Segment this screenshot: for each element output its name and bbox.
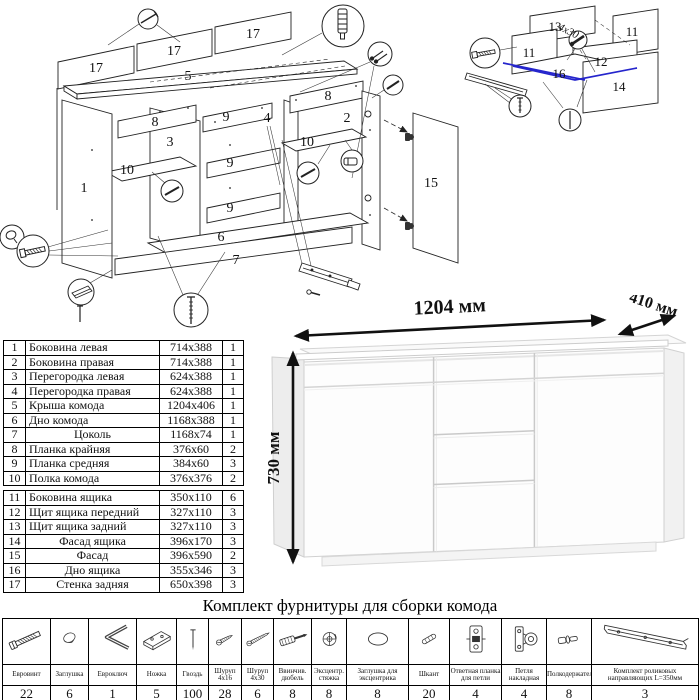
hardware-name: Комплект роликовых направляющих L=350мм: [592, 665, 699, 686]
part-label: 9: [227, 201, 234, 216]
parts-row: 12Щит ящика передний327x1103: [4, 505, 244, 520]
depth-dimension-label: 410 мм: [627, 295, 680, 321]
part-size: 624x388: [160, 370, 223, 385]
part-label: 4: [264, 111, 271, 126]
hardware-qty: 28: [209, 686, 242, 700]
part-number: 13: [4, 520, 26, 535]
part-qty: 3: [223, 520, 244, 535]
hardware-qty: 4: [502, 686, 547, 700]
screw-4x16-icon: [210, 619, 241, 659]
part-label: 15: [424, 176, 438, 191]
part-label: 14: [613, 79, 627, 94]
part-size: 1204x406: [160, 399, 223, 414]
part-label: 7: [233, 253, 240, 268]
parts-row: 2Боковина правая714x3881: [4, 355, 244, 370]
part-size: 350x110: [160, 491, 223, 506]
part-name: Полка комода: [26, 471, 160, 486]
part-size: 327x110: [160, 505, 223, 520]
part-number: 12: [4, 505, 26, 520]
hardware-qty: 6: [242, 686, 274, 700]
part-qty: 2: [223, 549, 244, 564]
hardware-qty: 22: [3, 686, 51, 700]
parts-row: 1Боковина левая714x3881: [4, 341, 244, 356]
part-size: 1168x74: [160, 428, 223, 443]
part-name: Боковина левая: [26, 341, 160, 356]
nail-icon: [178, 619, 208, 659]
part-number: 7: [4, 428, 26, 443]
parts-row: 3Перегородка левая624x3881: [4, 370, 244, 385]
part-name: Крыша комода: [26, 399, 160, 414]
part-label: 3: [167, 135, 174, 150]
parts-row: 10Полка комода376x3762: [4, 471, 244, 486]
part-size: 355x346: [160, 563, 223, 578]
part-number: 17: [4, 578, 26, 593]
part-name: Стенка задняя: [26, 578, 160, 593]
roller-guide-icon: [594, 619, 696, 659]
part-qty: 3: [223, 457, 244, 472]
part-name: Боковина ящика: [26, 491, 160, 506]
part-size: 327x110: [160, 520, 223, 535]
part-label: 16: [553, 66, 567, 81]
part-qty: 3: [223, 563, 244, 578]
part-qty: 3: [223, 534, 244, 549]
part-number: 1: [4, 341, 26, 356]
depth-arrow: [620, 316, 674, 334]
part-label: 12: [595, 54, 608, 69]
part-number: 10: [4, 471, 26, 486]
part-qty: 6: [223, 491, 244, 506]
parts-list-table-2: 11Боковина ящика350x1106 12Щит ящика пер…: [3, 490, 244, 593]
part-name: Боковина правая: [26, 355, 160, 370]
main-exploded-diagram: 17 17 17 5 8 8 9 9 9 1 2 3 4 6 7 10 10 1…: [0, 0, 460, 345]
screw-in-dowel-icon: [275, 619, 311, 659]
part-name: Щит ящика передний: [26, 505, 160, 520]
part-label: 1: [81, 181, 88, 196]
height-dimension-label: 730 мм: [264, 431, 283, 484]
parts-row: 13Щит ящика задний327x1103: [4, 520, 244, 535]
part-number: 2: [4, 355, 26, 370]
parts-row: 7Цоколь1168x741: [4, 428, 244, 443]
part-size: 396x590: [160, 549, 223, 564]
part-number: 14: [4, 534, 26, 549]
width-arrow: [296, 320, 604, 336]
roller-guide-icon: [299, 263, 360, 295]
part-label: 10: [120, 163, 134, 178]
dowel-icon: [412, 619, 446, 659]
hardware-name: Евроключ: [89, 665, 137, 686]
hardware-name: Эксцентр. стяжка: [312, 665, 347, 686]
drawer-exploded-diagram: 13 11 11 12 16 14 4x30: [455, 0, 700, 135]
part-name: Дно комода: [26, 413, 160, 428]
part-label: 2: [344, 111, 351, 126]
parts-row: 9Планка средняя384x603: [4, 457, 244, 472]
part-name: Планка средняя: [26, 457, 160, 472]
part-label: 9: [227, 156, 234, 171]
hardware-name: Шуруп 4x16: [209, 665, 242, 686]
part-qty: 2: [223, 442, 244, 457]
part-name: Щит ящика задний: [26, 520, 160, 535]
part-size: 714x388: [160, 355, 223, 370]
hardware-icons-row: [3, 619, 699, 665]
cam-lock-icon: [313, 619, 346, 659]
part-qty: 1: [223, 399, 244, 414]
hardware-qty: 6: [51, 686, 89, 700]
hardware-name: Шкант: [409, 665, 450, 686]
screw-4x30-icon: [242, 619, 273, 659]
part-label: 10: [300, 135, 314, 150]
part-name: Планка крайняя: [26, 442, 160, 457]
part-number: 15: [4, 549, 26, 564]
part-number: 3: [4, 370, 26, 385]
part-number: 6: [4, 413, 26, 428]
part-label: 8: [325, 89, 332, 104]
part-number: 5: [4, 399, 26, 414]
part-name: Перегородка правая: [26, 384, 160, 399]
hardware-name: Полкодержатель: [547, 665, 592, 686]
part-size: 1168x388: [160, 413, 223, 428]
part-size: 624x388: [160, 384, 223, 399]
parts-row: 17Стенка задняя650x3983: [4, 578, 244, 593]
parts-row: 15Фасад396x5902: [4, 549, 244, 564]
part-qty: 3: [223, 578, 244, 593]
hardware-table: Евровинт Заглушка Евроключ Ножка Гвоздь …: [2, 618, 699, 700]
part-label: 17: [167, 44, 181, 59]
hardware-qty: 4: [450, 686, 502, 700]
part-name: Фасад ящика: [26, 534, 160, 549]
part-size: 396x170: [160, 534, 223, 549]
width-dimension-label: 1204 мм: [413, 295, 486, 320]
part-qty: 1: [223, 370, 244, 385]
part-number: 9: [4, 457, 26, 472]
hardware-name: Петля накладная: [502, 665, 547, 686]
part-label: 11: [523, 45, 536, 60]
part-size: 376x376: [160, 471, 223, 486]
hardware-names-row: Евровинт Заглушка Евроключ Ножка Гвоздь …: [3, 665, 699, 686]
hardware-name: Заглушка для эксцентрика: [347, 665, 409, 686]
part-qty: 1: [223, 428, 244, 443]
part-size: 376x60: [160, 442, 223, 457]
nail-icon: [77, 306, 83, 322]
assembly-sheet: 17 17 17 5 8 8 9 9 9 1 2 3 4 6 7 10 10 1…: [0, 0, 700, 700]
parts-row: 8Планка крайняя376x602: [4, 442, 244, 457]
part-label: 17: [89, 61, 103, 76]
parts-row: 4Перегородка правая624x3881: [4, 384, 244, 399]
part-label: 17: [246, 27, 260, 42]
hardware-name: Евровинт: [3, 665, 51, 686]
part-number: 4: [4, 384, 26, 399]
hardware-qty: 1: [89, 686, 137, 700]
hardware-qty: 8: [347, 686, 409, 700]
parts-row: 6Дно комода1168x3881: [4, 413, 244, 428]
part-qty: 1: [223, 341, 244, 356]
hardware-qty: 8: [547, 686, 592, 700]
hardware-name: Шуруп 4x30: [242, 665, 274, 686]
part-qty: 2: [223, 471, 244, 486]
hardware-qty: 8: [312, 686, 347, 700]
dresser-rendering: [272, 335, 686, 566]
leg-icon: [138, 619, 176, 659]
part-qty: 1: [223, 413, 244, 428]
part-name: Цоколь: [26, 428, 160, 443]
hardware-name: Гвоздь: [177, 665, 209, 686]
part-number: 8: [4, 442, 26, 457]
part-number: 16: [4, 563, 26, 578]
hardware-name: Ножка: [137, 665, 177, 686]
parts-row: 16Дно ящика355x3463: [4, 563, 244, 578]
hinge-icon: [504, 619, 544, 659]
part-number: 11: [4, 491, 26, 506]
part-name: Дно ящика: [26, 563, 160, 578]
hardware-qty: 100: [177, 686, 209, 700]
hardware-name: Ответная планка для петли: [450, 665, 502, 686]
plug-icon: [53, 619, 87, 659]
euro-screw-icon: [5, 619, 49, 659]
hex-key-icon: [91, 619, 135, 659]
hardware-qty: 3: [592, 686, 699, 700]
part-label: 8: [152, 115, 159, 130]
part-size: 384x60: [160, 457, 223, 472]
part-size: 650x398: [160, 578, 223, 593]
hardware-qty-row: 22 6 1 5 100 28 6 8 8 8 20 4 4 8 3: [3, 686, 699, 700]
hardware-qty: 5: [137, 686, 177, 700]
dimension-drawing: 1204 мм 410 мм 730 мм: [260, 295, 700, 600]
part-size: 714x388: [160, 341, 223, 356]
parts-list-table-1: 1Боковина левая714x3881 2Боковина правая…: [3, 340, 244, 486]
part-qty: 3: [223, 505, 244, 520]
part-name: Фасад: [26, 549, 160, 564]
parts-row: 11Боковина ящика350x1106: [4, 491, 244, 506]
hardware-kit-title: Комплект фурнитуры для сборки комода: [0, 596, 700, 616]
hardware-name: Ввинчив. дюбель: [274, 665, 312, 686]
part-label: 9: [223, 110, 230, 125]
shelf-pin-icon: [550, 619, 588, 659]
parts-row: 14Фасад ящика396x1703: [4, 534, 244, 549]
hardware-qty: 8: [274, 686, 312, 700]
parts-row: 5Крыша комода1204x4061: [4, 399, 244, 414]
part-label: 6: [218, 230, 225, 245]
cam-cap-icon: [358, 619, 398, 659]
part-qty: 1: [223, 384, 244, 399]
part-label: 11: [626, 24, 639, 39]
hinge-plate-icon: [456, 619, 496, 659]
part-name: Перегородка левая: [26, 370, 160, 385]
hardware-name: Заглушка: [51, 665, 89, 686]
part-qty: 1: [223, 355, 244, 370]
hardware-qty: 20: [409, 686, 450, 700]
part-label: 5: [185, 69, 192, 84]
